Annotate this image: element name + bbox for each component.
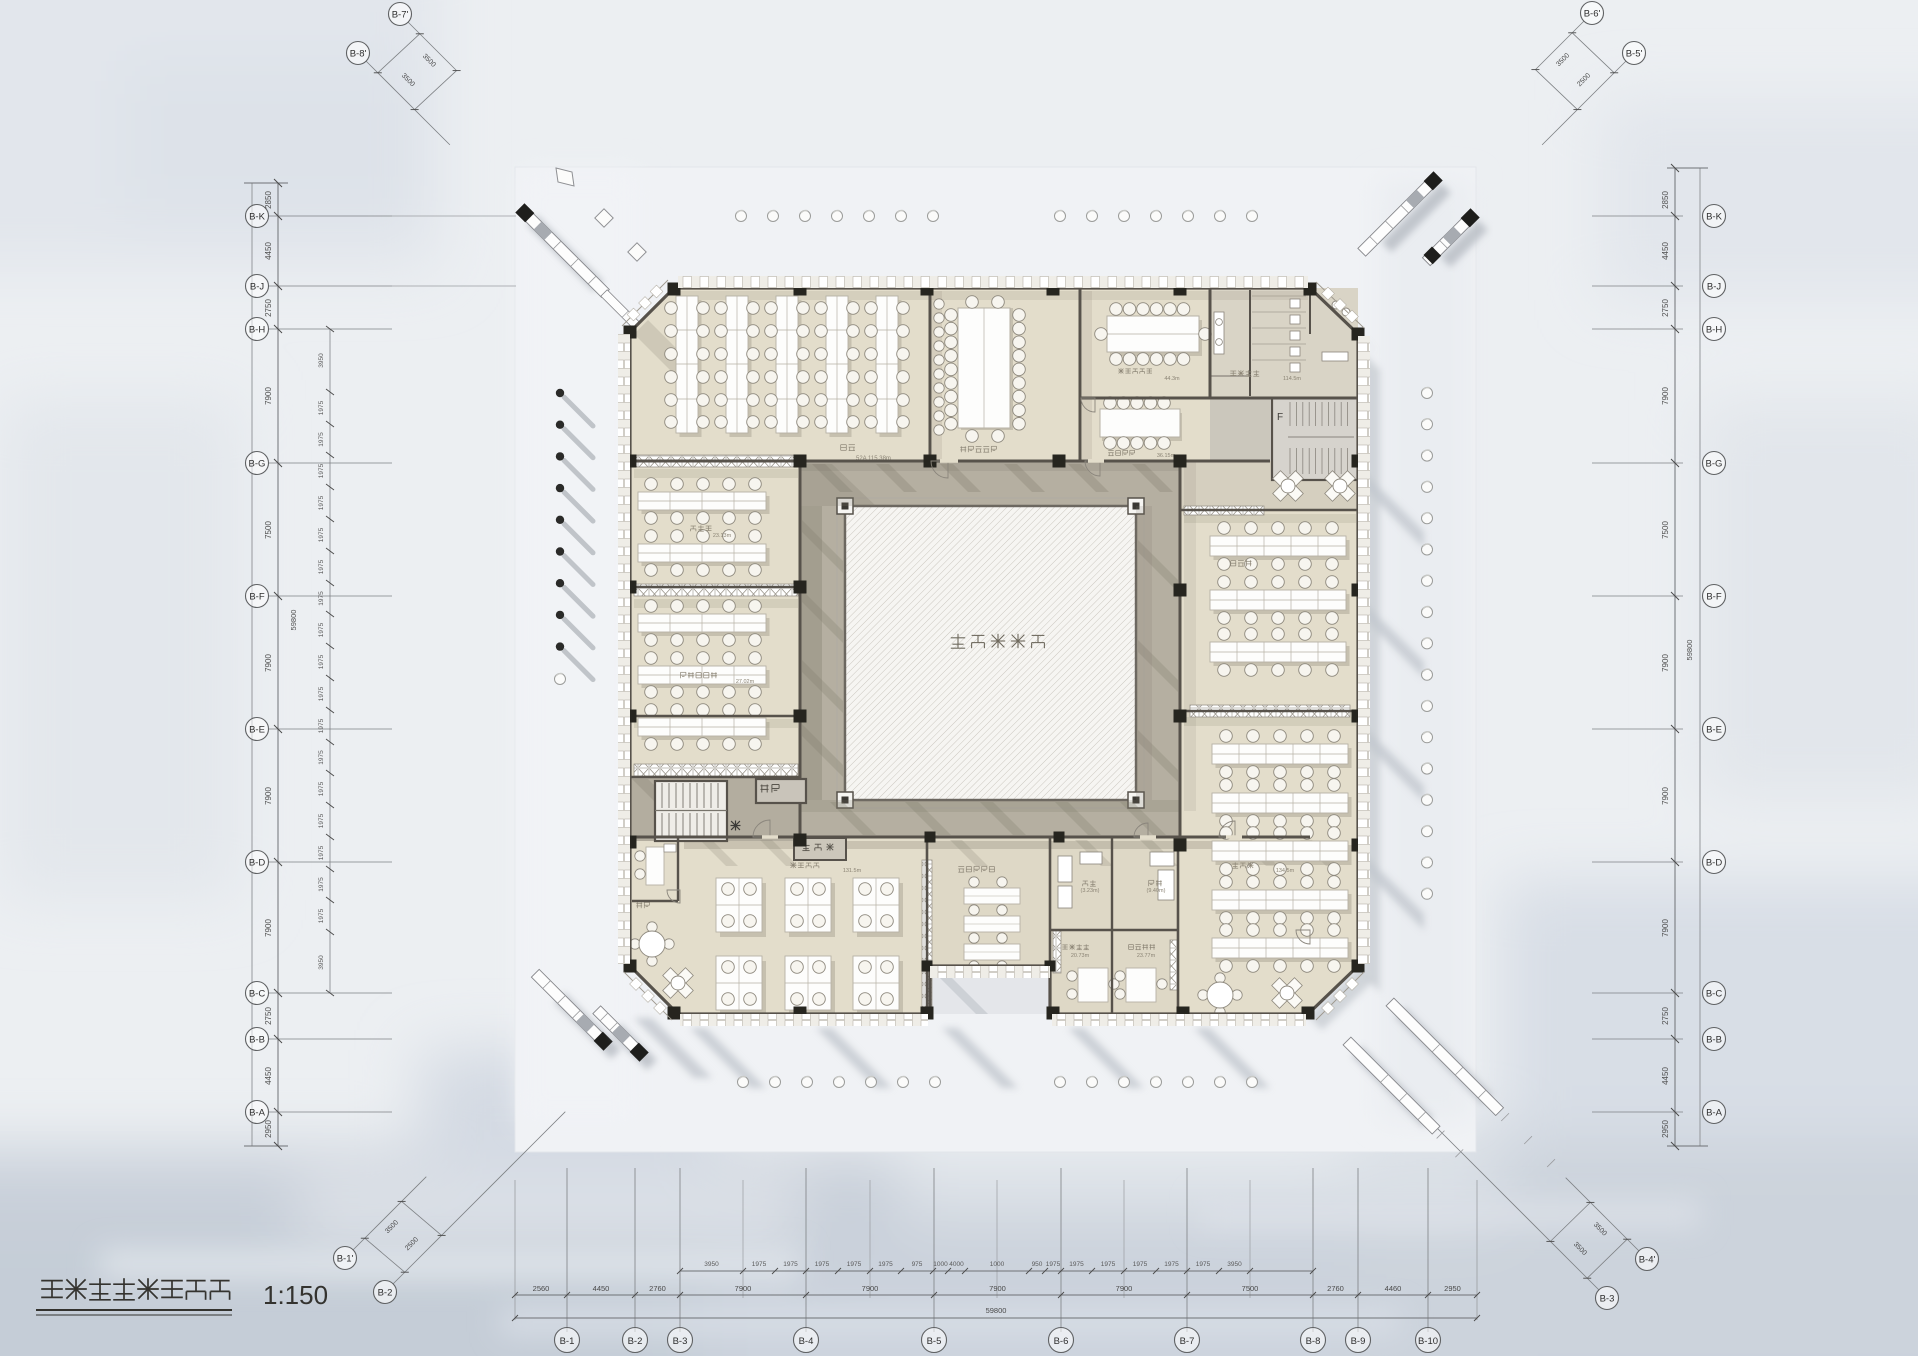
svg-text:1975: 1975 [318, 877, 325, 892]
svg-text:1975: 1975 [318, 686, 325, 701]
svg-text:4450: 4450 [593, 1284, 610, 1293]
svg-text:B-3: B-3 [673, 1336, 688, 1347]
svg-text:2560: 2560 [533, 1284, 550, 1293]
svg-text:1975: 1975 [318, 463, 325, 478]
svg-text:B-K: B-K [249, 212, 266, 223]
svg-text:B-4: B-4 [799, 1336, 814, 1347]
svg-text:1975: 1975 [318, 813, 325, 828]
svg-text:B-F: B-F [249, 592, 265, 603]
svg-text:4450: 4450 [264, 1067, 273, 1085]
svg-text:B-6': B-6' [1584, 9, 1601, 20]
svg-text:B-A: B-A [1706, 1108, 1723, 1119]
svg-text:7900: 7900 [1661, 787, 1670, 805]
svg-text:1975: 1975 [1164, 1261, 1179, 1268]
svg-text:B-1': B-1' [337, 1254, 354, 1265]
svg-text:B-3: B-3 [1600, 1294, 1615, 1305]
svg-text:36.15m: 36.15m [1157, 453, 1176, 459]
svg-text:7900: 7900 [862, 1284, 879, 1293]
svg-text:1975: 1975 [1046, 1261, 1061, 1268]
svg-text:B-1: B-1 [560, 1336, 575, 1347]
svg-text:1975: 1975 [318, 400, 325, 415]
svg-text:1975: 1975 [1069, 1261, 1084, 1268]
svg-text:F: F [1277, 412, 1283, 423]
svg-text:B-J: B-J [1707, 282, 1722, 293]
svg-text:1975: 1975 [1101, 1261, 1116, 1268]
svg-text:131.5m: 131.5m [843, 868, 862, 874]
svg-text:7900: 7900 [989, 1284, 1006, 1293]
svg-text:1975: 1975 [1133, 1261, 1148, 1268]
svg-text:B-K: B-K [1706, 212, 1723, 223]
svg-text:B-2: B-2 [378, 1288, 393, 1299]
svg-text:3950: 3950 [1227, 1261, 1242, 1268]
svg-text:4460: 4460 [1385, 1284, 1402, 1293]
svg-text:B-7': B-7' [392, 10, 409, 21]
svg-text:B-E: B-E [1706, 725, 1722, 736]
svg-text:2750: 2750 [1661, 299, 1670, 317]
svg-text:4000: 4000 [949, 1261, 964, 1268]
svg-text:2750: 2750 [1661, 1007, 1670, 1025]
svg-text:23.77m: 23.77m [1137, 953, 1156, 959]
svg-text:B-D: B-D [1706, 858, 1723, 869]
svg-text:B-C: B-C [249, 989, 266, 1000]
svg-text:B-8': B-8' [350, 49, 367, 60]
svg-text:1975: 1975 [1196, 1261, 1211, 1268]
svg-text:B-B: B-B [1706, 1035, 1722, 1046]
svg-text:3950: 3950 [318, 955, 325, 970]
svg-text:1975: 1975 [318, 718, 325, 733]
svg-text:2950: 2950 [264, 1120, 273, 1138]
svg-text:59800: 59800 [986, 1306, 1007, 1315]
svg-text:1975: 1975 [847, 1261, 862, 1268]
svg-text:950: 950 [1032, 1261, 1043, 1268]
svg-text:B-10: B-10 [1418, 1336, 1438, 1347]
svg-text:1975: 1975 [318, 559, 325, 574]
svg-text:(3.23m): (3.23m) [1081, 888, 1100, 894]
svg-text:7500: 7500 [1661, 521, 1670, 539]
svg-text:B-7: B-7 [1180, 1336, 1195, 1347]
svg-text:7900: 7900 [1661, 919, 1670, 937]
svg-text:B-6: B-6 [1054, 1336, 1069, 1347]
svg-text:B-5': B-5' [1626, 49, 1643, 60]
svg-text:59800: 59800 [1685, 640, 1694, 661]
svg-text:B-B: B-B [249, 1035, 265, 1046]
svg-text:1000: 1000 [990, 1261, 1005, 1268]
svg-text:7500: 7500 [264, 521, 273, 539]
svg-text:1975: 1975 [752, 1261, 767, 1268]
svg-text:3950: 3950 [318, 353, 325, 368]
svg-text:B-A: B-A [249, 1108, 266, 1119]
svg-text:7900: 7900 [264, 919, 273, 937]
svg-text:1975: 1975 [318, 781, 325, 796]
svg-text:7900: 7900 [735, 1284, 752, 1293]
svg-text:2750: 2750 [264, 299, 273, 317]
svg-text:1975: 1975 [318, 750, 325, 765]
svg-text:20.73m: 20.73m [1071, 953, 1090, 959]
svg-text:1975: 1975 [318, 622, 325, 637]
svg-text:1975: 1975 [318, 591, 325, 606]
svg-text:B-E: B-E [249, 725, 265, 736]
svg-text:1975: 1975 [318, 495, 325, 510]
svg-text:B-2: B-2 [628, 1336, 643, 1347]
svg-text:B-9: B-9 [1351, 1336, 1366, 1347]
svg-text:3950: 3950 [704, 1261, 719, 1268]
svg-text:7900: 7900 [264, 787, 273, 805]
svg-text:975: 975 [912, 1261, 923, 1268]
svg-text:23.13m: 23.13m [713, 533, 732, 539]
svg-text:2760: 2760 [649, 1284, 666, 1293]
svg-text:2850: 2850 [264, 191, 273, 209]
svg-text:B-C: B-C [1706, 989, 1723, 1000]
svg-text:1975: 1975 [318, 654, 325, 669]
svg-text:7900: 7900 [264, 654, 273, 672]
svg-text:1975: 1975 [815, 1261, 830, 1268]
svg-text:2850: 2850 [1661, 191, 1670, 209]
svg-text:1975: 1975 [318, 432, 325, 447]
svg-text:1975: 1975 [318, 845, 325, 860]
svg-text:44.3m: 44.3m [1164, 376, 1180, 382]
svg-text:59800: 59800 [289, 610, 298, 631]
svg-text:(9.40m): (9.40m) [1147, 888, 1166, 894]
svg-text:B-H: B-H [249, 325, 266, 336]
svg-text:134.5m: 134.5m [1276, 868, 1295, 874]
svg-text:1975: 1975 [318, 527, 325, 542]
svg-text:B-H: B-H [1706, 325, 1723, 336]
svg-text:2750: 2750 [264, 1007, 273, 1025]
svg-text:27.02m: 27.02m [736, 679, 755, 685]
svg-text:2950: 2950 [1661, 1120, 1670, 1138]
svg-text:1000: 1000 [933, 1261, 948, 1268]
svg-text:7500: 7500 [1242, 1284, 1259, 1293]
svg-text:B-J: B-J [250, 282, 265, 293]
svg-text:114.5m: 114.5m [1283, 376, 1301, 382]
svg-text:B-5: B-5 [927, 1336, 942, 1347]
svg-text:2760: 2760 [1327, 1284, 1344, 1293]
svg-text:4450: 4450 [264, 242, 273, 260]
svg-text:7900: 7900 [1116, 1284, 1133, 1293]
svg-text:7900: 7900 [264, 387, 273, 405]
svg-text:B-F: B-F [1706, 592, 1722, 603]
svg-text:1975: 1975 [878, 1261, 893, 1268]
svg-text:7900: 7900 [1661, 387, 1670, 405]
svg-text:B-8: B-8 [1306, 1336, 1321, 1347]
svg-text:2950: 2950 [1444, 1284, 1461, 1293]
svg-text:4450: 4450 [1661, 242, 1670, 260]
svg-text:1975: 1975 [783, 1261, 798, 1268]
svg-text:B-G: B-G [1706, 459, 1723, 470]
svg-text:1:150: 1:150 [263, 1280, 328, 1310]
svg-text:7900: 7900 [1661, 654, 1670, 672]
svg-text:4450: 4450 [1661, 1067, 1670, 1085]
svg-text:1975: 1975 [318, 908, 325, 923]
svg-text:B-4': B-4' [1639, 1255, 1656, 1266]
svg-text:B-D: B-D [249, 858, 266, 869]
svg-text:B-G: B-G [249, 459, 266, 470]
